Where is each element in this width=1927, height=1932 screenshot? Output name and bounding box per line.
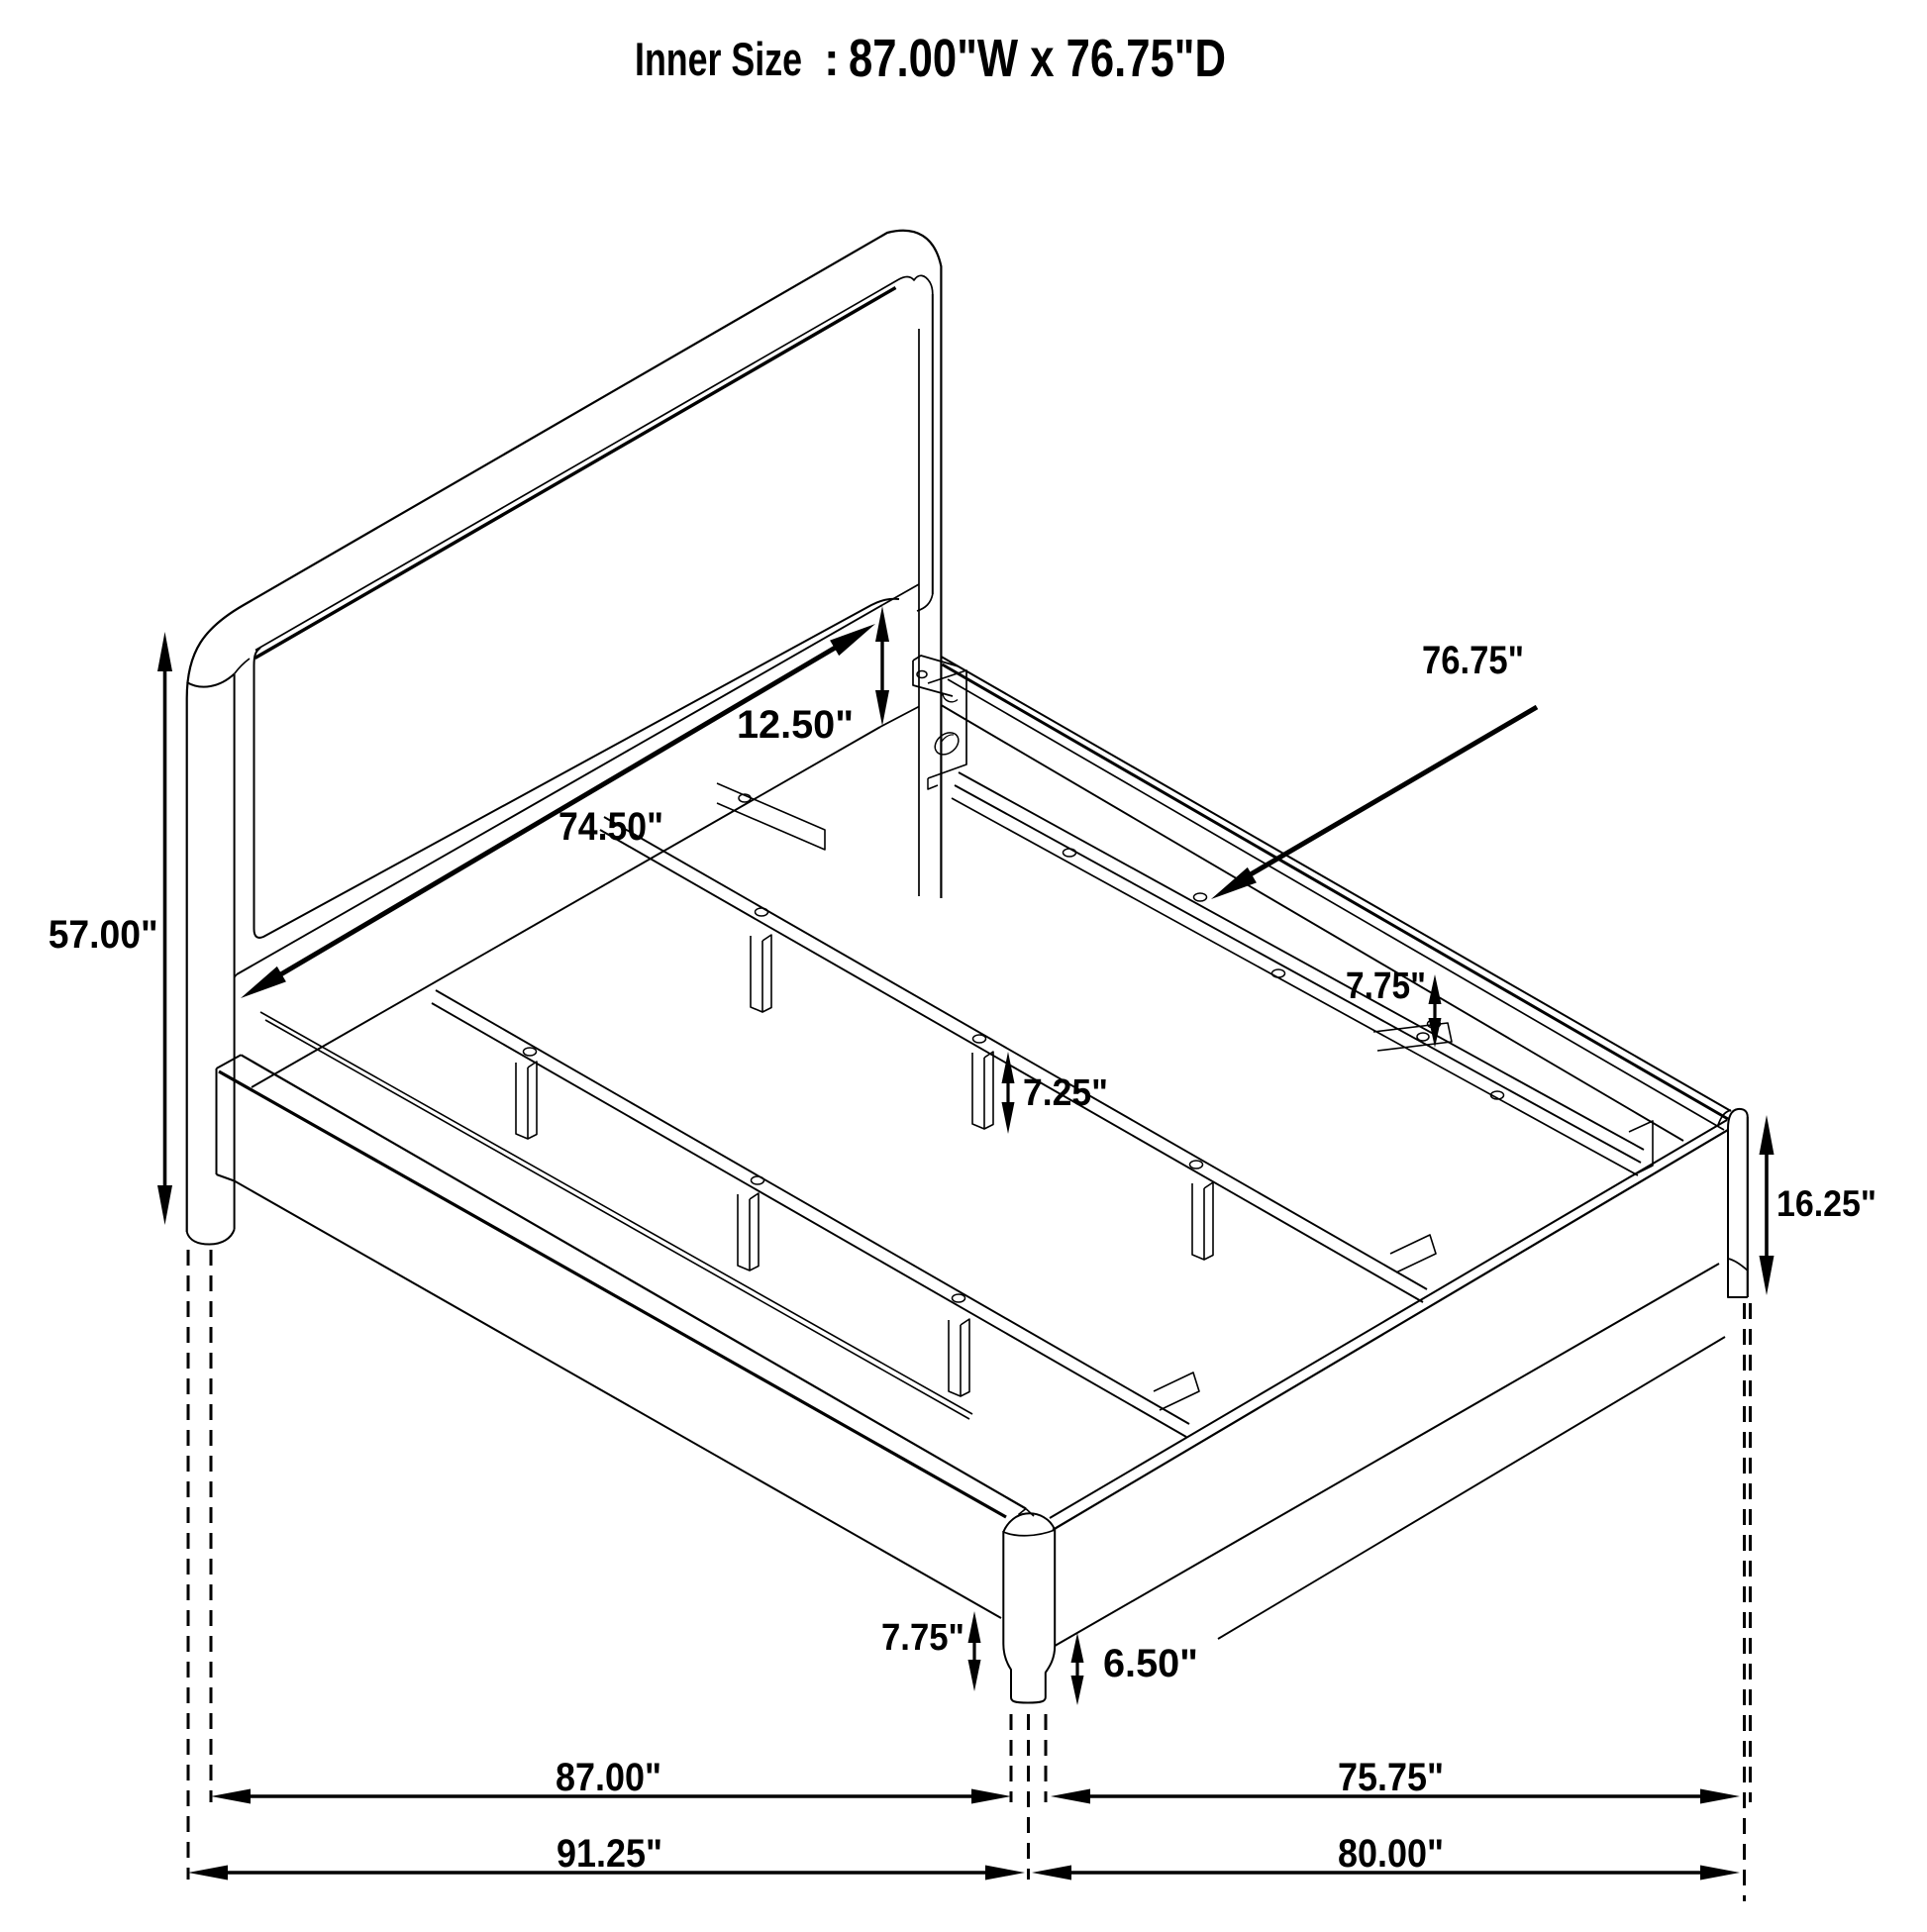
svg-text:12.50": 12.50"	[737, 703, 854, 747]
svg-text:Inner Size: Inner Size	[635, 33, 802, 85]
svg-text:57.00": 57.00"	[49, 913, 158, 957]
svg-text::: :	[824, 33, 840, 85]
svg-text:6.50": 6.50"	[1103, 1642, 1198, 1685]
svg-text:7.25": 7.25"	[1023, 1072, 1108, 1114]
svg-text:80.00": 80.00"	[1338, 1832, 1444, 1876]
svg-text:91.25": 91.25"	[557, 1832, 662, 1876]
svg-text:7.75": 7.75"	[1346, 966, 1426, 1007]
svg-text:76.75": 76.75"	[1422, 639, 1524, 682]
svg-text:7.75": 7.75"	[881, 1617, 964, 1659]
svg-text:75.75": 75.75"	[1338, 1756, 1444, 1799]
svg-text:87.00"W x 76.75"D: 87.00"W x 76.75"D	[849, 29, 1226, 88]
svg-text:87.00": 87.00"	[556, 1756, 661, 1799]
svg-text:16.25": 16.25"	[1776, 1183, 1876, 1224]
svg-text:74.50": 74.50"	[558, 805, 663, 849]
